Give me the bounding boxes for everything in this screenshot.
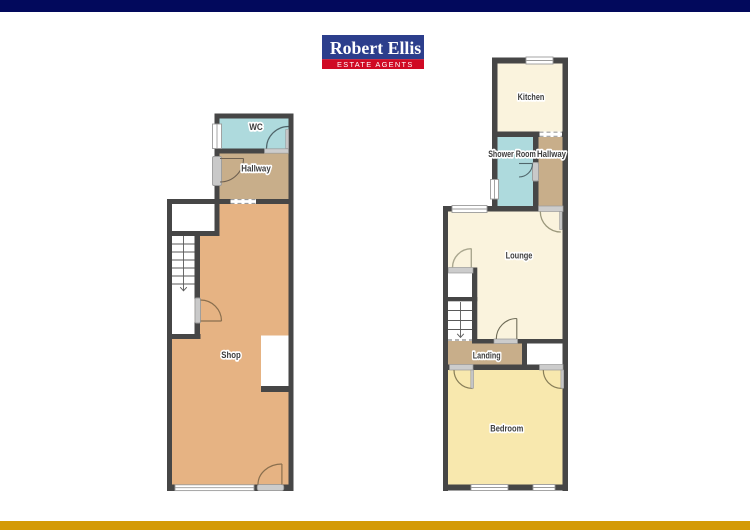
svg-text:Bedroom: Bedroom — [490, 423, 523, 434]
svg-text:Landing: Landing — [473, 351, 501, 361]
svg-text:Hallway: Hallway — [537, 149, 566, 160]
svg-text:Robert Ellis: Robert Ellis — [330, 38, 421, 58]
svg-text:ESTATE AGENTS: ESTATE AGENTS — [337, 60, 414, 69]
svg-text:Kitchen: Kitchen — [518, 91, 545, 102]
svg-text:Shop: Shop — [221, 350, 241, 361]
svg-text:Lounge: Lounge — [506, 250, 533, 261]
svg-text:Shower Room: Shower Room — [488, 149, 536, 159]
svg-text:Hallway: Hallway — [241, 163, 271, 174]
svg-text:WC: WC — [249, 121, 263, 132]
